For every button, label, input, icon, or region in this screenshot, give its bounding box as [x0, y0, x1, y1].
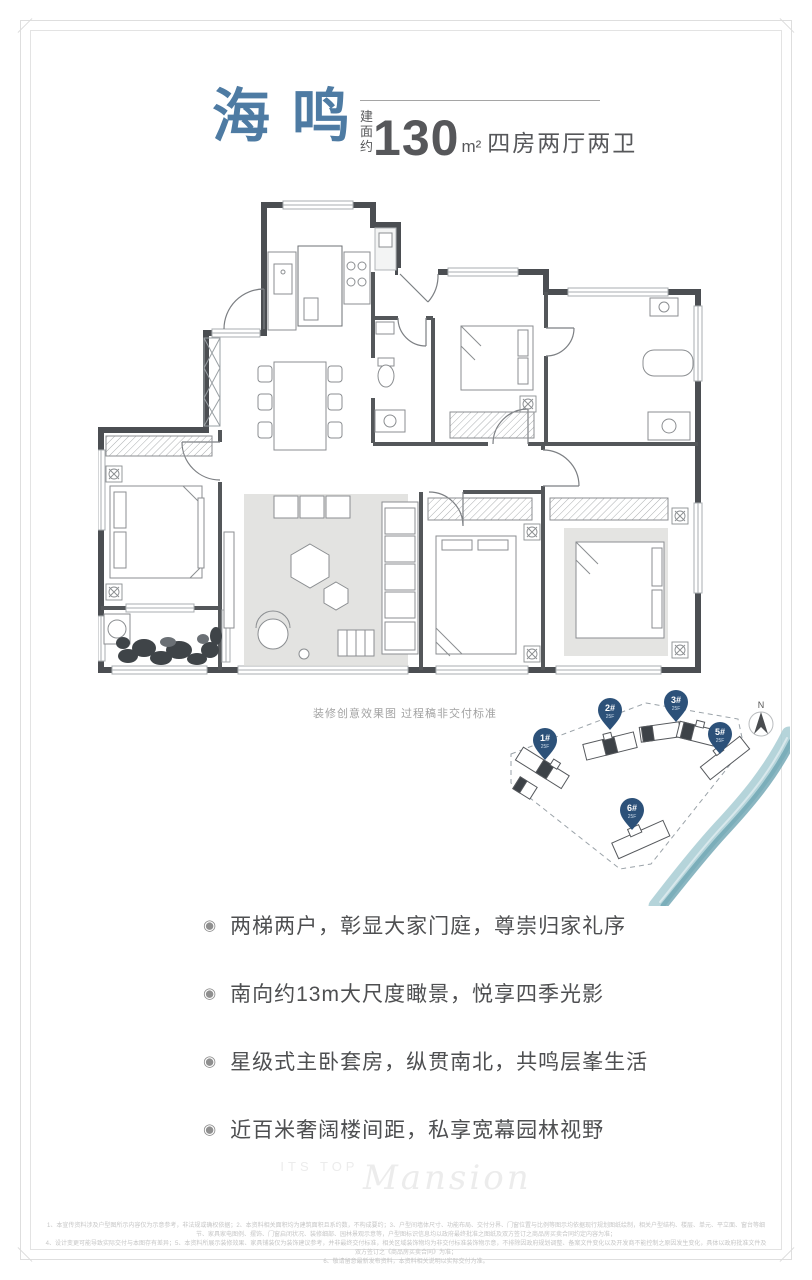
kitchen-sink [268, 252, 296, 330]
unit-title: 海鸣 [212, 88, 372, 146]
floorplan-drawing [98, 198, 708, 683]
site-pins: 1# 25F 2# 25F 3# 25F 5# 25F 6# 25F [533, 690, 732, 830]
bullet-icon: ◉ [203, 1122, 216, 1137]
disclaimer-line-2: 4、设计变更可能导致实际交付与本图存有差异；5、本资料所展示装修效果、家具铺装仅… [44, 1240, 768, 1258]
bullet-icon: ◉ [203, 918, 216, 933]
svg-text:25F: 25F [628, 814, 637, 820]
selling-point-1: ◉ 两梯两户，彰显大家门庭，尊崇归家礼序 [203, 910, 648, 940]
watermark-script: Mansion [363, 1158, 532, 1198]
site-pin-6: 6# 25F [620, 798, 644, 830]
selling-point-4: ◉ 近百米奢阔楼间距，私享宽幕园林视野 [203, 1114, 648, 1144]
frame-corner-tl [18, 18, 33, 33]
legal-disclaimer: 1、本宣传资料涉及户型图所示内容仅为示意参考，非法规或确权依据；2、本资料相关面… [44, 1222, 768, 1267]
selling-point-text: 南向约13m大尺度瞰景，悦享四季光影 [230, 978, 604, 1008]
flyer-page: 海鸣 建面约 130 m² 四房两厅两卫 [0, 0, 812, 1280]
frame-corner-tr [780, 18, 795, 33]
wardrobe [428, 498, 532, 520]
site-pin-2: 2# 25F [598, 698, 622, 730]
living-room [224, 494, 418, 666]
sofa [382, 502, 418, 654]
svg-text:3#: 3# [671, 695, 681, 705]
building-1b [513, 777, 537, 799]
wardrobe [550, 498, 668, 520]
unit-spec: 建面约 130 m² 四房两厅两卫 [360, 100, 600, 161]
svg-text:N: N [758, 700, 765, 710]
svg-text:2#: 2# [605, 703, 615, 713]
area-unit: m² [461, 137, 481, 157]
compass-icon: N [749, 700, 773, 736]
svg-text:25F: 25F [606, 714, 615, 720]
disclaimer-line-3: 6、敬请留意最新发布资料，本资料相关说明以实际交付为准。 [44, 1258, 768, 1267]
wardrobe [450, 412, 534, 438]
bedroom-2 [450, 326, 534, 438]
dining-area [258, 362, 342, 450]
bullet-icon: ◉ [203, 1054, 216, 1069]
brand-watermark: ITS TOP Mansion [0, 1158, 812, 1198]
dining-table [274, 362, 326, 450]
frame-corner-bl [18, 1247, 33, 1262]
layout-description: 四房两厅两卫 [487, 124, 637, 158]
site-pin-3: 3# 25F [664, 690, 688, 722]
building-2 [582, 727, 638, 760]
svg-text:6#: 6# [627, 803, 637, 813]
fridge [375, 228, 396, 270]
watermark-prefix: ITS TOP [280, 1159, 358, 1174]
wardrobe [106, 436, 212, 456]
selling-point-3: ◉ 星级式主卧套房，纵贯南北，共鸣层峯生活 [203, 1046, 648, 1076]
tv-cabinet [224, 532, 234, 628]
svg-text:25F: 25F [716, 738, 725, 744]
disclaimer-line-1: 1、本宣传资料涉及户型图所示内容仅为示意参考，非法规或确权依据；2、本资料相关面… [44, 1222, 768, 1240]
building-3 [639, 716, 718, 746]
svg-text:1#: 1# [540, 733, 550, 743]
area-prefix: 建面约 [360, 110, 373, 155]
frame-corner-br [780, 1247, 795, 1262]
svg-text:25F: 25F [541, 744, 550, 750]
svg-text:5#: 5# [715, 727, 725, 737]
siteplan-drawing: 1# 25F 2# 25F 3# 25F 5# 25F 6# 25F [498, 688, 790, 906]
svg-text:25F: 25F [672, 706, 681, 712]
bullet-icon: ◉ [203, 986, 216, 1001]
kitchen-stove [344, 252, 370, 304]
area-value: 130 [373, 116, 459, 161]
selling-point-text: 星级式主卧套房，纵贯南北，共鸣层峯生活 [230, 1046, 648, 1076]
selling-point-2: ◉ 南向约13m大尺度瞰景，悦享四季光影 [203, 978, 648, 1008]
selling-points-list: ◉ 两梯两户，彰显大家门庭，尊崇归家礼序 ◉ 南向约13m大尺度瞰景，悦享四季光… [203, 910, 648, 1182]
selling-point-text: 两梯两户，彰显大家门庭，尊崇归家礼序 [230, 910, 626, 940]
selling-point-text: 近百米奢阔楼间距，私享宽幕园林视野 [230, 1114, 604, 1144]
